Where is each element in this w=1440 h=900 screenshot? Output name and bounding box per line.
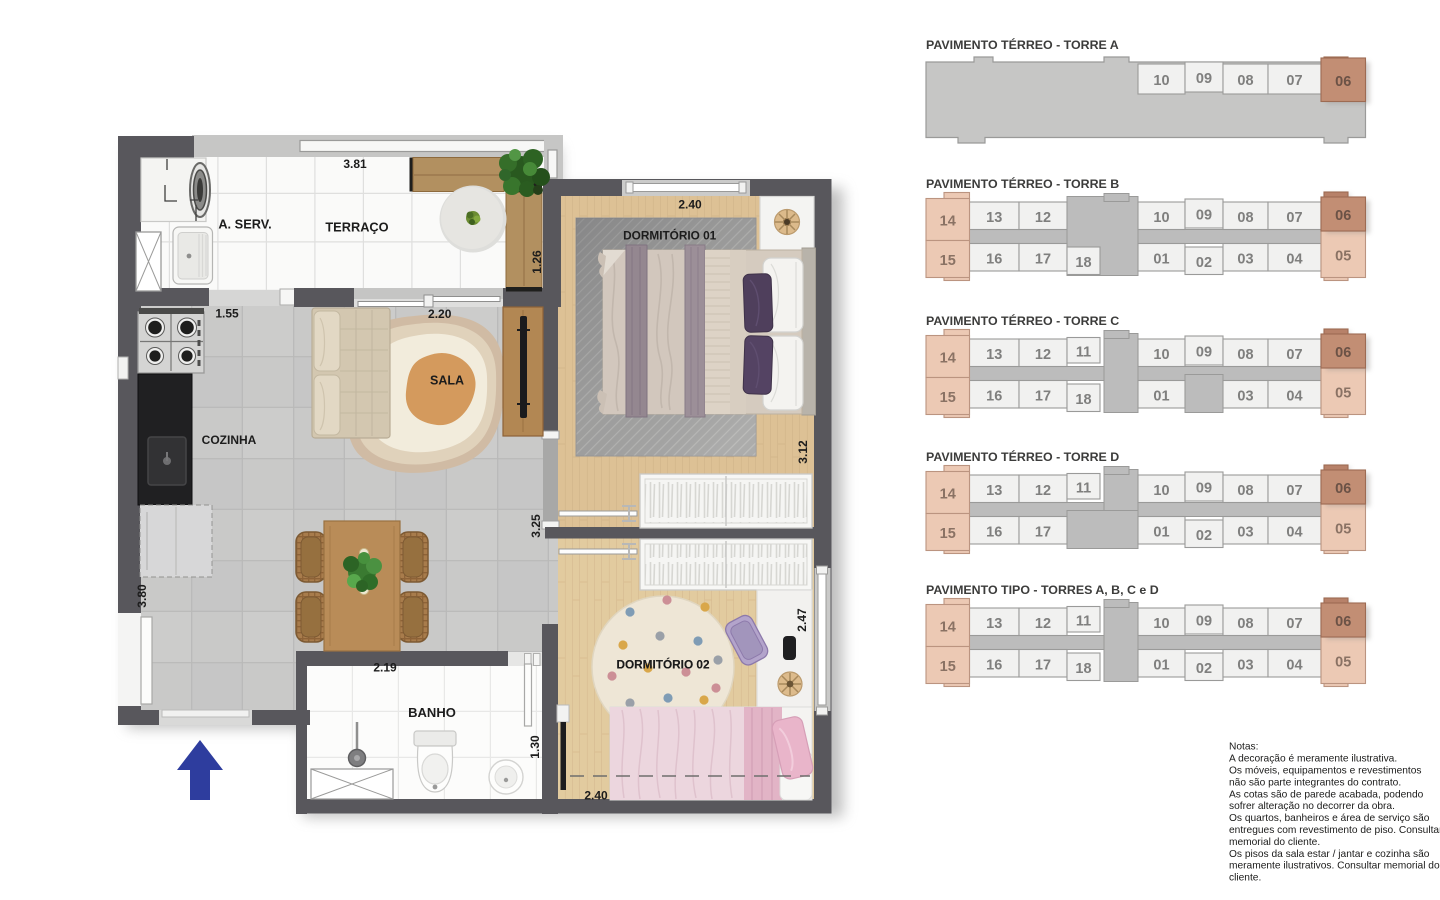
svg-text:10: 10: [1153, 483, 1169, 499]
svg-text:07: 07: [1286, 483, 1302, 499]
svg-text:15: 15: [940, 253, 956, 269]
svg-text:08: 08: [1237, 483, 1253, 499]
svg-text:09: 09: [1196, 345, 1212, 361]
svg-text:10: 10: [1153, 73, 1169, 89]
svg-text:3.81: 3.81: [343, 157, 367, 171]
svg-text:04: 04: [1286, 657, 1302, 673]
svg-text:14: 14: [940, 214, 956, 230]
svg-text:14: 14: [940, 351, 956, 367]
svg-text:2.19: 2.19: [373, 661, 397, 675]
svg-text:não são parte integrantes do c: não são parte integrantes do contrato.: [1229, 777, 1401, 788]
svg-text:09: 09: [1196, 614, 1212, 630]
svg-text:3.25: 3.25: [529, 514, 543, 538]
svg-text:SALA: SALA: [430, 374, 464, 388]
svg-text:06: 06: [1335, 614, 1351, 630]
svg-text:17: 17: [1035, 251, 1051, 267]
svg-text:11: 11: [1076, 480, 1091, 496]
svg-text:17: 17: [1035, 657, 1051, 673]
svg-text:COZINHA: COZINHA: [202, 433, 257, 447]
svg-text:11: 11: [1076, 344, 1091, 360]
svg-text:2.40: 2.40: [584, 789, 608, 803]
svg-text:11: 11: [1076, 613, 1091, 629]
svg-text:14: 14: [940, 487, 956, 503]
svg-text:BANHO: BANHO: [408, 705, 456, 720]
svg-text:08: 08: [1237, 616, 1253, 632]
svg-text:05: 05: [1335, 654, 1351, 670]
svg-text:PAVIMENTO TÉRREO - TORRE D: PAVIMENTO TÉRREO - TORRE D: [926, 449, 1119, 464]
svg-text:13: 13: [986, 347, 1002, 363]
svg-text:15: 15: [940, 390, 956, 406]
svg-text:13: 13: [986, 616, 1002, 632]
svg-text:03: 03: [1237, 524, 1253, 540]
svg-text:Notas:: Notas:: [1229, 742, 1258, 753]
svg-text:1.26: 1.26: [530, 250, 544, 274]
svg-text:03: 03: [1237, 251, 1253, 267]
svg-text:02: 02: [1196, 528, 1212, 544]
svg-text:13: 13: [986, 483, 1002, 499]
svg-text:05: 05: [1335, 385, 1351, 401]
svg-text:07: 07: [1286, 347, 1302, 363]
svg-text:Os móveis, equipamentos e reve: Os móveis, equipamentos e revestimentos: [1229, 766, 1422, 777]
svg-text:14: 14: [940, 620, 956, 636]
svg-text:meramente ilustrativos. Consul: meramente ilustrativos. Consultar memori…: [1229, 861, 1440, 872]
svg-text:06: 06: [1335, 345, 1351, 361]
svg-text:17: 17: [1035, 524, 1051, 540]
svg-text:18: 18: [1075, 661, 1091, 677]
svg-text:09: 09: [1196, 71, 1212, 87]
svg-text:01: 01: [1153, 388, 1169, 404]
svg-text:04: 04: [1286, 524, 1302, 540]
svg-text:DORMITÓRIO 02: DORMITÓRIO 02: [616, 658, 710, 672]
svg-text:17: 17: [1035, 388, 1051, 404]
svg-text:12: 12: [1035, 483, 1051, 499]
svg-text:10: 10: [1153, 616, 1169, 632]
svg-text:entregues com revestimento de: entregues com revestimento de piso. Cons…: [1229, 825, 1440, 836]
svg-text:PAVIMENTO TIPO - TORRES A, B,: PAVIMENTO TIPO - TORRES A, B, C e D: [926, 583, 1159, 597]
svg-text:03: 03: [1237, 388, 1253, 404]
svg-text:18: 18: [1075, 255, 1091, 271]
svg-text:2.40: 2.40: [678, 198, 702, 212]
svg-text:TERRAÇO: TERRAÇO: [325, 220, 388, 235]
svg-text:memorial do cliente.: memorial do cliente.: [1229, 837, 1320, 848]
svg-text:DORMITÓRIO 01: DORMITÓRIO 01: [623, 229, 717, 243]
svg-text:04: 04: [1286, 251, 1302, 267]
svg-text:16: 16: [986, 388, 1002, 404]
svg-text:A decoração é meramente ilustr: A decoração é meramente ilustrativa.: [1229, 754, 1397, 765]
svg-text:12: 12: [1035, 347, 1051, 363]
svg-text:06: 06: [1335, 208, 1351, 224]
svg-text:2.20: 2.20: [428, 307, 452, 321]
svg-text:10: 10: [1153, 347, 1169, 363]
svg-text:09: 09: [1196, 481, 1212, 497]
svg-text:PAVIMENTO TÉRREO - TORRE B: PAVIMENTO TÉRREO - TORRE B: [926, 176, 1119, 191]
svg-text:06: 06: [1335, 74, 1351, 90]
svg-text:Os quartos, banheiros e área d: Os quartos, banheiros e área de serviço …: [1229, 813, 1430, 824]
svg-text:08: 08: [1237, 347, 1253, 363]
svg-text:1.30: 1.30: [528, 735, 542, 759]
svg-text:3.80: 3.80: [135, 584, 149, 608]
svg-text:09: 09: [1196, 208, 1212, 224]
svg-text:18: 18: [1075, 392, 1091, 408]
svg-text:PAVIMENTO TÉRREO - TORRE C: PAVIMENTO TÉRREO - TORRE C: [926, 313, 1119, 328]
svg-text:01: 01: [1153, 524, 1169, 540]
svg-text:2.47: 2.47: [795, 608, 809, 632]
svg-text:02: 02: [1196, 661, 1212, 677]
svg-text:08: 08: [1237, 73, 1253, 89]
svg-text:04: 04: [1286, 388, 1302, 404]
svg-text:15: 15: [940, 659, 956, 675]
svg-text:03: 03: [1237, 657, 1253, 673]
svg-text:12: 12: [1035, 616, 1051, 632]
svg-text:12: 12: [1035, 210, 1051, 226]
svg-text:cliente.: cliente.: [1229, 873, 1261, 884]
svg-text:07: 07: [1286, 616, 1302, 632]
svg-text:15: 15: [940, 526, 956, 542]
svg-text:sofrer alteração no decorrer d: sofrer alteração no decorrer da obra.: [1229, 801, 1395, 812]
svg-text:A. SERV.: A. SERV.: [218, 217, 271, 232]
svg-text:10: 10: [1153, 210, 1169, 226]
svg-text:1.55: 1.55: [215, 307, 239, 321]
svg-text:13: 13: [986, 210, 1002, 226]
svg-text:05: 05: [1335, 248, 1351, 264]
svg-text:3.12: 3.12: [796, 440, 810, 464]
svg-text:16: 16: [986, 524, 1002, 540]
svg-text:06: 06: [1335, 481, 1351, 497]
svg-text:05: 05: [1335, 521, 1351, 537]
svg-text:16: 16: [986, 657, 1002, 673]
svg-text:01: 01: [1153, 251, 1169, 267]
svg-text:01: 01: [1153, 657, 1169, 673]
svg-text:07: 07: [1286, 73, 1302, 89]
svg-text:16: 16: [986, 251, 1002, 267]
svg-text:02: 02: [1196, 255, 1212, 271]
svg-text:07: 07: [1286, 210, 1302, 226]
svg-text:08: 08: [1237, 210, 1253, 226]
svg-text:As cotas são de parede acabada: As cotas são de parede acabada, podendo: [1229, 789, 1424, 800]
svg-text:Os pisos da sala estar / janta: Os pisos da sala estar / jantar e cozinh…: [1229, 849, 1430, 860]
svg-text:PAVIMENTO TÉRREO - TORRE A: PAVIMENTO TÉRREO - TORRE A: [926, 37, 1119, 52]
